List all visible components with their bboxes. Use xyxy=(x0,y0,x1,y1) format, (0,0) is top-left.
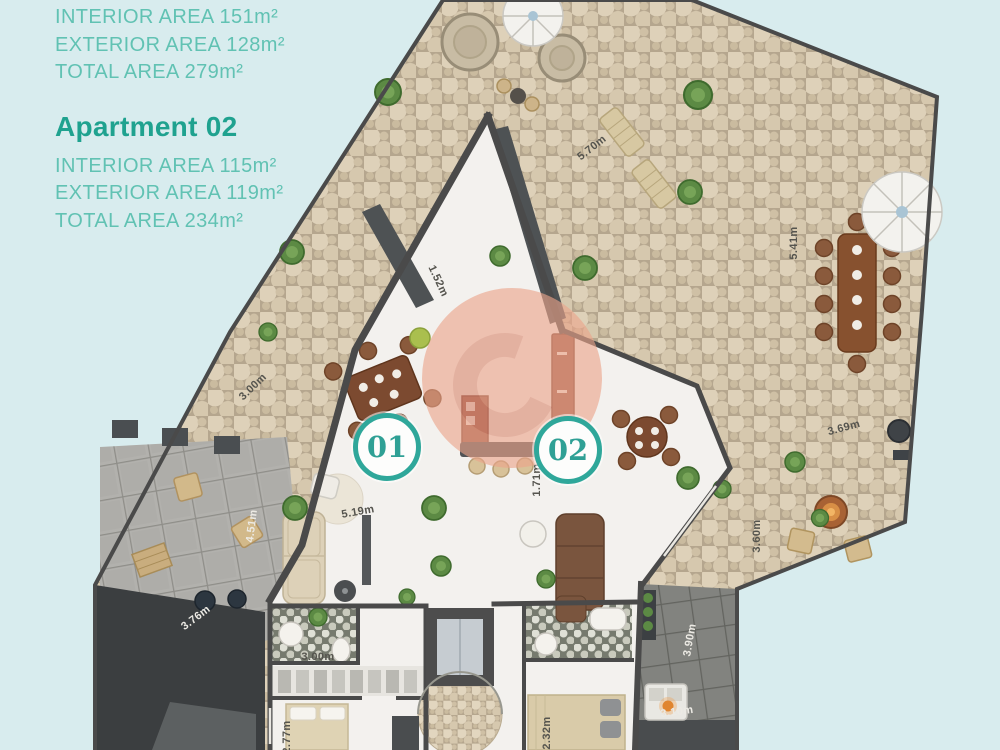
unit-01-label: 01 xyxy=(367,430,407,464)
dimension-label: 2.77m xyxy=(281,720,293,750)
sofa-right xyxy=(556,514,604,622)
apt02-interior-area: INTERIOR AREA 115m² xyxy=(55,153,285,181)
dimension-label: 5.41m xyxy=(788,226,800,259)
closet-strip xyxy=(272,666,424,696)
dimension-label: 2.32m xyxy=(541,716,553,749)
unit-marker-02[interactable]: 02 xyxy=(534,416,602,484)
terrace-dark-right xyxy=(635,584,737,750)
bed-left xyxy=(286,704,348,750)
planter-jar xyxy=(228,590,246,608)
dimension-label: 3.60m xyxy=(751,519,763,552)
apt02-exterior-area: EXTERIOR AREA 119m² xyxy=(55,180,285,208)
floorplan-page: INTERIOR AREA 151m² EXTERIOR AREA 128m² … xyxy=(0,0,1000,750)
unit-marker-01[interactable]: 01 xyxy=(353,413,421,481)
apt01-exterior-area: EXTERIOR AREA 128m² xyxy=(55,32,285,60)
area-legend: INTERIOR AREA 151m² EXTERIOR AREA 128m² … xyxy=(55,4,285,235)
dresser-left xyxy=(392,716,419,750)
tv-console xyxy=(362,515,371,585)
apartment-02-title: Apartment 02 xyxy=(55,111,285,143)
apt01-total-area: TOTAL AREA 279m² xyxy=(55,59,285,87)
bbq-grill xyxy=(888,420,910,442)
apt02-total-area: TOTAL AREA 234m² xyxy=(55,208,285,236)
dimension-label: 3.00m xyxy=(301,651,334,663)
unit-02-label: 02 xyxy=(548,433,588,467)
coffee-table xyxy=(520,521,546,547)
apt01-interior-area: INTERIOR AREA 151m² xyxy=(55,4,285,32)
